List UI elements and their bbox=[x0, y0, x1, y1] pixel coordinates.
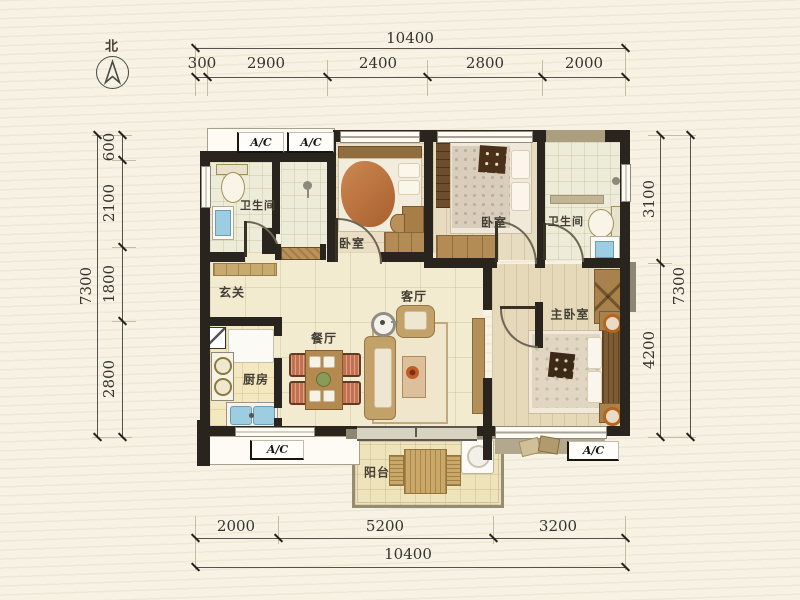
bowl bbox=[406, 366, 419, 379]
dim-label: 3200 bbox=[539, 517, 577, 535]
dim-label: 2800 bbox=[466, 54, 504, 72]
dim-label-bottom-total: 10400 bbox=[384, 545, 432, 563]
window bbox=[437, 131, 533, 143]
ac-unit-label: A/C bbox=[250, 440, 304, 460]
dim-label: 3100 bbox=[640, 180, 658, 218]
dining-chair bbox=[340, 381, 361, 405]
entry-door-post bbox=[320, 244, 326, 260]
balcony-bench bbox=[389, 455, 404, 486]
fridge-icon bbox=[228, 329, 274, 363]
dim-label-right-total: 7300 bbox=[670, 267, 688, 305]
dim-label: 2100 bbox=[100, 184, 118, 222]
dim-label: 5200 bbox=[366, 517, 404, 535]
door-leaf bbox=[244, 221, 247, 257]
dim-label: 2800 bbox=[100, 360, 118, 398]
dining-chair bbox=[340, 353, 361, 377]
sink-basin-icon bbox=[595, 241, 614, 258]
plate bbox=[309, 390, 321, 402]
wall bbox=[603, 426, 630, 436]
wall bbox=[424, 130, 433, 262]
window bbox=[621, 164, 631, 202]
guide-line bbox=[195, 516, 196, 570]
armchair-seat bbox=[404, 311, 427, 330]
bedside-tray bbox=[478, 145, 507, 174]
room-label-kitchen: 厨房 bbox=[243, 371, 269, 388]
faucet-icon bbox=[249, 413, 254, 418]
dim-label: 2400 bbox=[359, 54, 397, 72]
burner-icon bbox=[214, 378, 232, 396]
dim-line-top-segments bbox=[195, 77, 625, 78]
north-label: 北 bbox=[105, 36, 119, 55]
wall bbox=[380, 252, 424, 262]
entry-door-post bbox=[275, 244, 281, 260]
door-leaf bbox=[500, 306, 536, 309]
sofa-seat bbox=[374, 348, 392, 408]
window bbox=[340, 131, 420, 143]
dim-label: 2000 bbox=[565, 54, 603, 72]
ac-unit-label: A/C bbox=[567, 441, 619, 461]
plate bbox=[309, 356, 321, 368]
wall bbox=[274, 326, 282, 336]
bed-headboard bbox=[436, 140, 450, 208]
shower-corridor-floor bbox=[281, 158, 327, 248]
pillow bbox=[587, 337, 602, 369]
dim-label: 300 bbox=[188, 54, 217, 72]
window bbox=[235, 427, 315, 437]
sliding-door-divider bbox=[415, 426, 417, 437]
plate bbox=[323, 356, 335, 368]
dim-line-left-segments bbox=[122, 135, 123, 437]
shower-partition bbox=[550, 195, 604, 204]
wall bbox=[483, 378, 492, 460]
room-label-bathroom: 卫生间 bbox=[240, 197, 276, 213]
sink-basin-icon bbox=[253, 406, 275, 425]
wall bbox=[483, 258, 492, 310]
guide-line bbox=[625, 516, 626, 570]
pillow bbox=[398, 163, 420, 178]
room-label-balcony: 阳台 bbox=[364, 464, 390, 481]
bed-throw bbox=[548, 352, 575, 379]
sliding-door bbox=[357, 426, 477, 441]
lamp-center bbox=[380, 320, 385, 325]
dim-line-bottom-total bbox=[195, 567, 625, 568]
desk-chair bbox=[390, 214, 405, 233]
room-label-dining: 餐厅 bbox=[311, 330, 337, 347]
room-label-bathroom: 卫生间 bbox=[548, 213, 584, 229]
ac-unit-label: A/C bbox=[237, 132, 284, 153]
sink-basin-icon bbox=[215, 210, 231, 236]
wall bbox=[200, 317, 282, 326]
floor-plan-page: 北 10400 300 2900 2400 2800 2000 2000 520… bbox=[0, 0, 800, 600]
dim-line-bottom-segments bbox=[195, 538, 625, 539]
compass-circle bbox=[96, 56, 129, 89]
shower-stem bbox=[307, 189, 309, 198]
wall bbox=[274, 358, 282, 408]
ledge-cushion bbox=[538, 435, 560, 454]
toilet-icon bbox=[588, 209, 614, 238]
entry-door bbox=[281, 247, 322, 260]
dim-line-right-segments bbox=[660, 135, 661, 437]
pillow bbox=[511, 182, 530, 211]
room-label-bedroom: 卧室 bbox=[339, 235, 365, 252]
dim-line-right-total bbox=[690, 135, 691, 437]
dim-label: 4200 bbox=[640, 331, 658, 369]
shoe-cabinet bbox=[213, 263, 277, 276]
room-label-master: 主卧室 bbox=[550, 306, 589, 323]
wall bbox=[197, 420, 210, 466]
dim-label-left-total: 7300 bbox=[77, 267, 95, 305]
dim-label: 600 bbox=[100, 133, 118, 162]
wall bbox=[209, 252, 245, 262]
pillow bbox=[511, 150, 530, 179]
burner-icon bbox=[214, 357, 232, 375]
balcony-table bbox=[404, 449, 447, 494]
dim-label: 2000 bbox=[217, 517, 255, 535]
shower-icon bbox=[612, 177, 620, 185]
room-label-living: 客厅 bbox=[401, 288, 427, 305]
exterior-sill-top-right bbox=[546, 130, 605, 142]
dim-label-top-total: 10400 bbox=[386, 29, 434, 47]
window bbox=[201, 166, 211, 208]
dim-line-left-total bbox=[97, 135, 98, 437]
dim-line-top-total bbox=[195, 48, 625, 49]
room-label-bedroom: 卧室 bbox=[481, 214, 507, 231]
table-centerpiece bbox=[316, 372, 331, 387]
dim-label: 2900 bbox=[247, 54, 285, 72]
pillow bbox=[398, 180, 420, 195]
ac-unit-label: A/C bbox=[287, 132, 334, 153]
door-leaf bbox=[335, 218, 338, 262]
north-arrow-icon bbox=[97, 57, 128, 88]
wall bbox=[582, 258, 630, 268]
room-label-foyer: 玄关 bbox=[219, 284, 245, 301]
wardrobe bbox=[436, 235, 497, 260]
balcony-bench bbox=[446, 455, 461, 486]
wall bbox=[272, 158, 280, 234]
door-leaf bbox=[543, 223, 546, 260]
plate bbox=[323, 390, 335, 402]
lamp-stem bbox=[391, 321, 398, 323]
guide-line bbox=[625, 44, 626, 96]
dim-label: 1800 bbox=[100, 265, 118, 303]
pillow bbox=[587, 371, 602, 403]
